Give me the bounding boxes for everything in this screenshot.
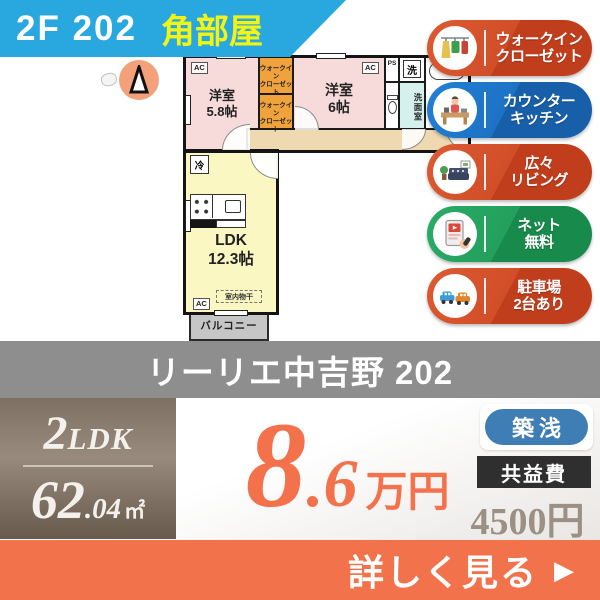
- building-age-text: 築浅: [507, 411, 566, 443]
- feature-label: カウンター キッチン: [489, 82, 589, 138]
- feature-badge-spacious-living: 広々 リビング: [427, 144, 592, 200]
- badge-separator: [484, 278, 486, 314]
- balcony-door-window: [214, 310, 248, 316]
- common-fee-label: 共益費: [501, 458, 567, 487]
- room-5-8-label: 洋室 5.8帖: [188, 88, 256, 119]
- free-internet-icon: [433, 212, 477, 256]
- stove-icon: [191, 195, 213, 218]
- area-decimal: .04: [85, 493, 121, 525]
- building-age-badge-frame: 築浅: [480, 404, 593, 450]
- details-button[interactable]: 詳しく見る ▶: [0, 540, 600, 600]
- walk-in-closet-icon: [433, 26, 477, 70]
- badge-separator: [484, 30, 486, 66]
- summary-block: 2LDK 62.04㎡ 8.6万円 築浅 共益費 4500円: [0, 398, 600, 540]
- layout-area-box: 2LDK 62.04㎡: [0, 398, 176, 539]
- wic-lower-label: ウォークイン クローゼット: [259, 102, 293, 135]
- balcony-label: バルコニー: [191, 320, 267, 333]
- toilet-tank-icon: [387, 95, 398, 100]
- common-fee-value: 4500円: [455, 490, 600, 545]
- ac-label: AC: [362, 62, 379, 74]
- corner-room-tag: 角部屋: [161, 4, 263, 53]
- room-6-label: 洋室 6帖: [306, 82, 372, 116]
- property-listing-card: 冷 洗 室内物干 洋室 5.8帖 ウォークイン クローゼット ウォークイン クロ…: [0, 0, 600, 600]
- layout-number: 2: [44, 407, 68, 460]
- badge-separator: [484, 216, 486, 252]
- toilet-icon: [388, 101, 397, 114]
- feature-label: ネット 無料: [489, 206, 589, 262]
- badge-separator: [484, 92, 486, 128]
- area-unit: ㎡: [124, 499, 145, 523]
- feature-badge-counter-kitchen: カウンター キッチン: [427, 82, 592, 138]
- floor-unit-banner: 2F 202 角部屋: [0, 0, 346, 57]
- area-integer: 62: [31, 470, 85, 530]
- feature-label: 広々 リビング: [489, 144, 589, 200]
- kitchen-cabinet-dark: [190, 220, 216, 228]
- kitchen-counter: [190, 194, 246, 220]
- refrigerator-symbol: 冷: [190, 155, 209, 174]
- compass-icon: [119, 60, 159, 100]
- feature-label: 駐車場 2台あり: [489, 268, 589, 324]
- pipe-space-label: PS: [384, 60, 400, 68]
- feature-badge-free-internet: ネット 無料: [427, 206, 592, 262]
- wic-upper-label: ウォークイン クローゼット: [259, 65, 293, 98]
- layout-value: 2LDK: [44, 410, 133, 458]
- parking-icon: [433, 274, 477, 318]
- kitchen-cabinet-light: [216, 220, 246, 228]
- property-title-band: リーリエ中吉野 202: [0, 341, 600, 398]
- window: [316, 53, 346, 59]
- feature-badge-walk-in-closet: ウォークイン クローゼット: [427, 20, 592, 76]
- floor-unit-number: 2F 202: [16, 9, 137, 49]
- rent-decimal: .6: [306, 444, 357, 523]
- ac-label: AC: [191, 62, 208, 74]
- spec-divider: [23, 465, 153, 467]
- rent-unit: 万円: [365, 458, 449, 519]
- ldk-label: LDK 12.3帖: [196, 232, 266, 269]
- common-fee-label-box: 共益費: [477, 456, 591, 488]
- washroom-label: 洗面室: [401, 86, 423, 128]
- layout-type: LDK: [68, 421, 133, 456]
- indoor-drying-label: 室内物干: [216, 290, 262, 303]
- badge-separator: [484, 154, 486, 190]
- rent-price: 8.6万円: [225, 398, 470, 538]
- sink-icon: [225, 200, 241, 213]
- area-value: 62.04㎡: [31, 473, 145, 527]
- details-button-label: 詳しく見る: [348, 544, 538, 596]
- ac-label: AC: [193, 298, 210, 310]
- spacious-living-icon: [433, 150, 477, 194]
- rent-integer: 8: [245, 402, 306, 530]
- right-arrow-icon: ▶: [554, 555, 574, 586]
- washing-machine-symbol: 洗: [403, 60, 421, 78]
- counter-kitchen-icon: [433, 88, 477, 132]
- feature-label: ウォークイン クローゼット: [489, 20, 589, 76]
- feature-badge-parking: 駐車場 2台あり: [427, 268, 592, 324]
- sketch-doodle: [100, 71, 119, 87]
- property-title: リーリエ中吉野 202: [147, 346, 453, 394]
- building-age-badge: 築浅: [485, 409, 588, 445]
